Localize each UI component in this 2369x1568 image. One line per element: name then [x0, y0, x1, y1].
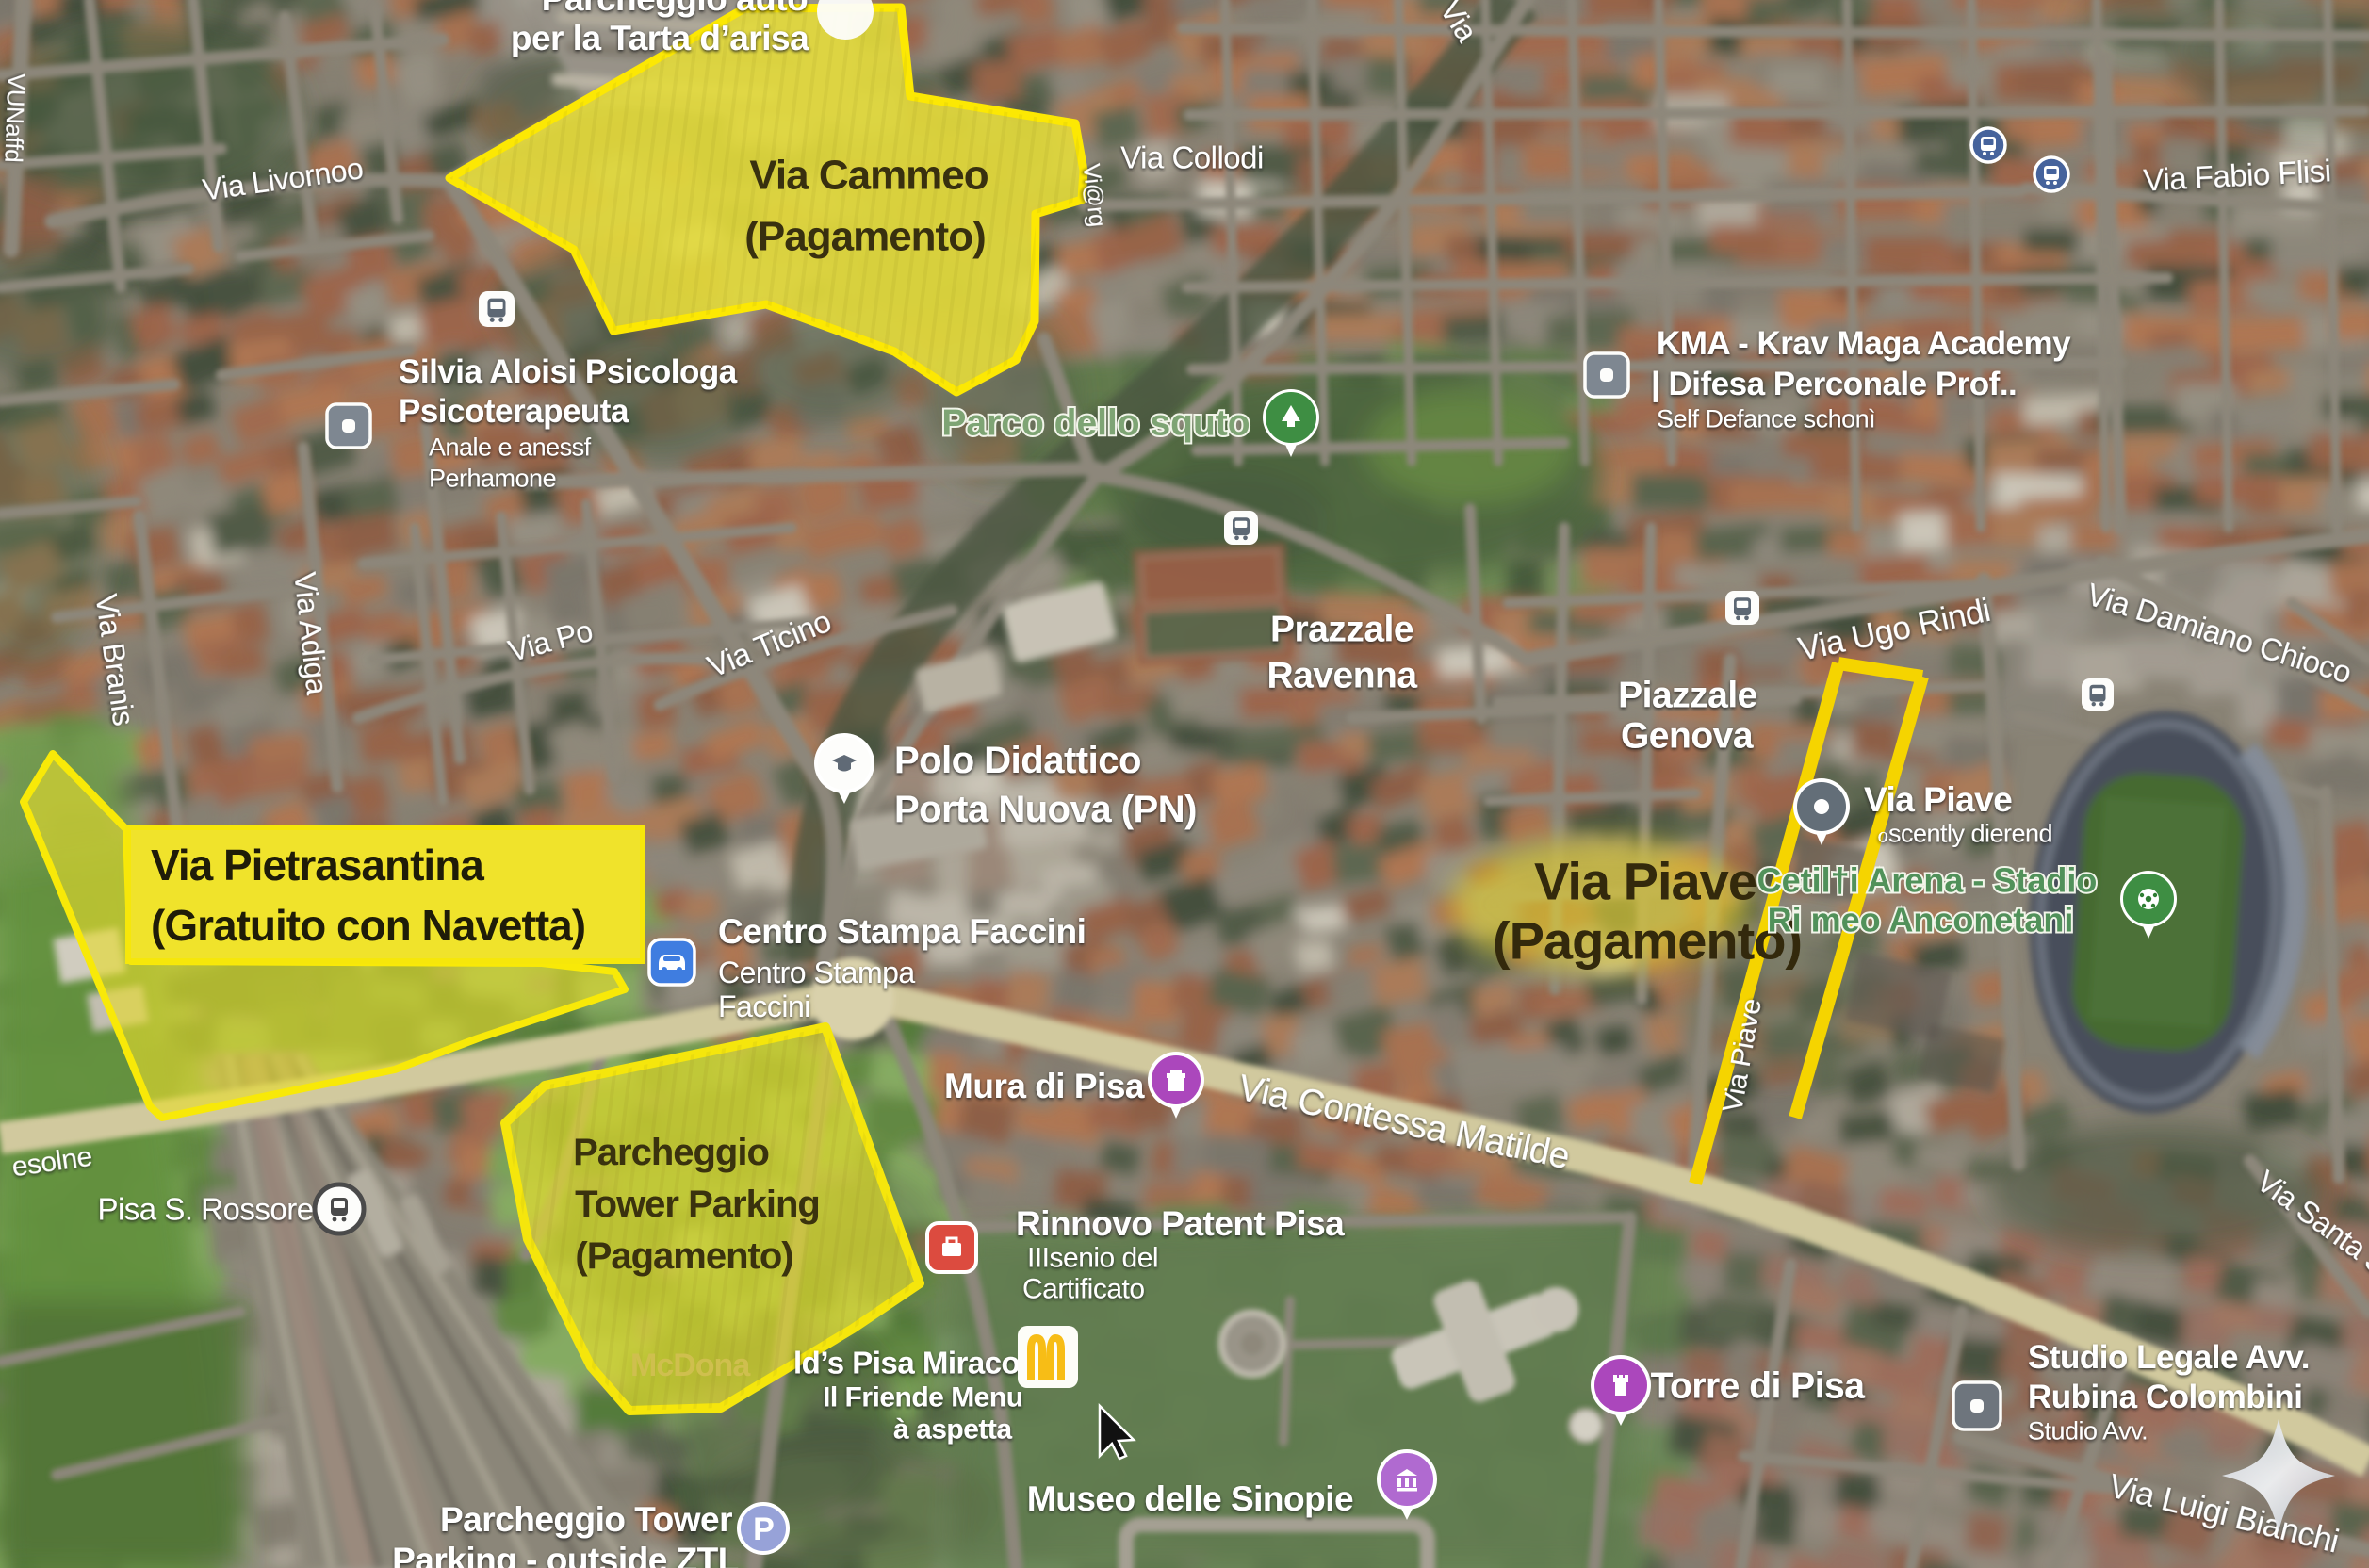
svg-text:Museo delle Sinopie: Museo delle Sinopie — [1027, 1479, 1353, 1518]
svg-text:VUNaffd: VUNaffd — [0, 73, 31, 162]
svg-text:Ravenna: Ravenna — [1266, 656, 1417, 696]
svg-text:Torre di Pisa: Torre di Pisa — [1651, 1366, 1866, 1407]
svg-text:Polo Didattico: Polo Didattico — [894, 740, 1141, 781]
svg-text:ℴscently dierend: ℴscently dierend — [1877, 820, 2052, 848]
svg-text:IIIsenio del: IIIsenio del — [1027, 1243, 1158, 1274]
svg-text:Via Piave: Via Piave — [1864, 780, 2012, 819]
svg-text:ld’s Pisa Miracoli: ld’s Pisa Miracoli — [793, 1346, 1037, 1380]
svg-text:Via Collodi: Via Collodi — [1120, 140, 1264, 175]
svg-text:Studio Avv.: Studio Avv. — [2028, 1417, 2148, 1445]
svg-text:Prazzale: Prazzale — [1270, 610, 1413, 650]
svg-text:Perhamone: Perhamone — [429, 465, 556, 493]
svg-text:Cartificato: Cartificato — [1022, 1274, 1145, 1305]
svg-text:McDona: McDona — [630, 1347, 751, 1383]
svg-text:Parco dello squto: Parco dello squto — [941, 403, 1250, 444]
svg-text:Studio Legale Avv.: Studio Legale Avv. — [2028, 1339, 2310, 1376]
svg-text:Via Piave: Via Piave — [1534, 852, 1756, 911]
svg-text:Psicoterapeuta: Psicoterapeuta — [399, 393, 629, 430]
svg-text:Via Pietrasantina: Via Pietrasantina — [151, 841, 484, 890]
svg-text:Genova: Genova — [1621, 716, 1754, 757]
svg-text:Self Defance schonì: Self Defance schonì — [1657, 404, 1875, 433]
svg-text:à aspetta: à aspetta — [893, 1414, 1012, 1445]
svg-text:Piazzale: Piazzale — [1618, 676, 1757, 716]
svg-text:Rubina Colombini: Rubina Colombini — [2028, 1379, 2302, 1415]
svg-text:(Pagamento): (Pagamento) — [744, 213, 985, 259]
svg-text:per la Tarta d’arisa: per la Tarta d’arisa — [511, 19, 809, 57]
svg-text:Faccini: Faccini — [718, 989, 810, 1023]
svg-text:Mura di Pisa: Mura di Pisa — [944, 1067, 1145, 1105]
svg-text:(Gratuito con Navetta): (Gratuito con Navetta) — [151, 901, 585, 950]
svg-text:Ri meo Anconetani: Ri meo Anconetani — [1768, 901, 2074, 939]
svg-text:Cetil†i Arena - Stadio: Cetil†i Arena - Stadio — [1757, 861, 2098, 900]
svg-text:| Difesa Perconale Prof..: | Difesa Perconale Prof.. — [1651, 366, 2017, 402]
svg-text:Silvia Aloisi Psicologa: Silvia Aloisi Psicologa — [399, 353, 738, 390]
svg-text:Centro Stampa: Centro Stampa — [718, 955, 915, 989]
svg-text:P: P — [753, 1511, 774, 1547]
svg-text:Parcheggio Tower: Parcheggio Tower — [440, 1500, 732, 1539]
svg-text:Parcheggio auto: Parcheggio auto — [542, 0, 808, 18]
svg-text:Porta Nuova (PN): Porta Nuova (PN) — [894, 789, 1197, 830]
svg-text:Centro Stampa Faccini: Centro Stampa Faccini — [718, 912, 1086, 951]
svg-text:Parcheggio: Parcheggio — [573, 1132, 769, 1173]
svg-text:Tower Parking: Tower Parking — [575, 1184, 820, 1225]
svg-text:Parking - outside ZTL: Parking - outside ZTL — [392, 1541, 739, 1568]
svg-text:Rinnovo Patent Pisa: Rinnovo Patent Pisa — [1016, 1204, 1345, 1243]
svg-text:Via Cammeo: Via Cammeo — [749, 152, 988, 198]
svg-text:Pisa S. Rossore: Pisa S. Rossore — [97, 1192, 313, 1227]
svg-text:KMA - Krav Maga Academy: KMA - Krav Maga Academy — [1657, 325, 2071, 362]
svg-text:Anale e anessf: Anale e anessf — [429, 433, 592, 461]
svg-text:(Pagamento): (Pagamento) — [575, 1235, 792, 1277]
svg-text:Il Friende Menu: Il Friende Menu — [823, 1382, 1023, 1413]
svg-text:(Pagamento): (Pagamento) — [1493, 911, 1802, 971]
